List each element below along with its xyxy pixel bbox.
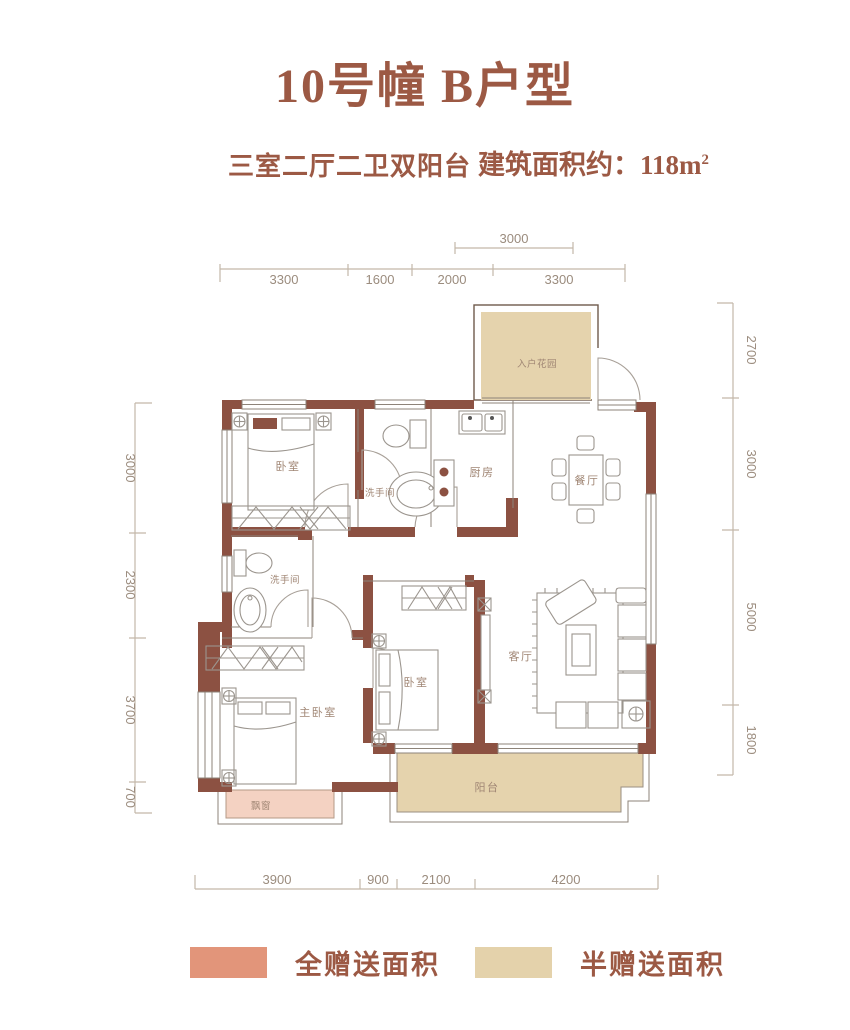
dim-label-right-2: 5000 (744, 603, 759, 632)
dimensions-bottom: 3900 900 2100 4200 (195, 872, 658, 889)
dimensions-top: 3000 3300 1600 2000 3300 (220, 231, 625, 287)
legend-swatch-full-gift-icon (190, 947, 267, 978)
window (222, 430, 232, 503)
entry-threshold (598, 400, 636, 410)
legend-item-half-gift: 半赠送面积 (475, 943, 725, 982)
legend-swatch-half-gift-icon (475, 947, 552, 978)
room-label-master-bedroom: 主卧室 (299, 705, 337, 719)
legend-item-full-gift: 全赠送面积 (190, 943, 440, 982)
toilet (383, 420, 426, 448)
wardrobe (402, 586, 466, 610)
legend-label-full-gift: 全赠送面积 (295, 943, 440, 982)
coffee-table (566, 625, 596, 675)
dim-label-left-0: 3000 (123, 454, 138, 483)
dim-label-right-0: 2700 (744, 336, 759, 365)
bathtub (234, 588, 266, 632)
room-label-living: 客厅 (509, 649, 534, 663)
dim-label-top-secondary: 3000 (500, 231, 529, 246)
tv-cabinet (481, 615, 490, 690)
room-label-bathroom-top: 洗手间 (365, 487, 395, 499)
room-label-kitchen: 厨房 (470, 466, 495, 479)
balcony-area (390, 752, 649, 822)
room-label-entry-garden: 入户花园 (517, 358, 557, 370)
bed-mid-bedroom (372, 634, 438, 746)
dim-label-right-3: 1800 (744, 726, 759, 755)
dim-label-left-1: 2300 (123, 571, 138, 600)
dim-label-left-2: 3700 (123, 696, 138, 725)
dim-label-right-1: 3000 (744, 450, 759, 479)
window (198, 692, 220, 778)
floor-plan-page: 10号幢 B户型 三室二厅二卫双阳台 建筑面积约：118m2 3000 3300… (0, 0, 850, 1030)
window (242, 400, 306, 409)
floor-plan-drawing: 3000 3300 1600 2000 3300 3000 2300 3700 … (0, 0, 850, 1030)
dimensions-left: 3000 2300 3700 700 (123, 403, 152, 813)
dim-label-bottom-0: 3900 (263, 872, 292, 887)
legend-label-half-gift: 半赠送面积 (580, 943, 725, 982)
dim-label-bottom-3: 4200 (552, 872, 581, 887)
armchair (544, 578, 597, 625)
room-label-dining: 餐厅 (575, 473, 600, 487)
toilet (234, 550, 272, 576)
dim-label-bottom-2: 2100 (422, 872, 451, 887)
window (375, 400, 425, 409)
entry-door-arc (598, 358, 640, 400)
room-label-bay-window: 飘窗 (251, 800, 271, 812)
bed-master-bedroom (222, 688, 296, 786)
legend: 全赠送面积 半赠送面积 (0, 940, 850, 980)
dim-label-top-2: 2000 (438, 272, 467, 287)
bay-window-area (218, 790, 342, 824)
dim-label-top-1: 1600 (366, 272, 395, 287)
entry-garden-area (474, 305, 603, 402)
kitchen-sink (459, 411, 505, 434)
wardrobe (206, 646, 304, 670)
bathroom2-door-arc (271, 590, 308, 627)
dimensions-right: 2700 3000 5000 1800 (717, 303, 759, 775)
dim-label-top-3: 3300 (545, 272, 574, 287)
sliding-door (498, 744, 638, 753)
room-label-bedroom-mid: 卧室 (404, 675, 429, 689)
stove (434, 460, 454, 506)
dim-label-bottom-1: 900 (367, 872, 389, 887)
dim-label-top-0: 3300 (270, 272, 299, 287)
room-label-bathroom-left: 洗手间 (270, 574, 300, 586)
living-room-furniture (478, 578, 650, 728)
window (646, 494, 656, 644)
room-label-balcony: 阳台 (475, 780, 500, 794)
master-door-arc (312, 598, 352, 638)
room-label-bedroom-top: 卧室 (276, 459, 301, 473)
dim-label-left-3: 700 (123, 786, 138, 808)
side-table (622, 701, 650, 728)
sliding-door (395, 744, 452, 753)
window (222, 556, 232, 592)
